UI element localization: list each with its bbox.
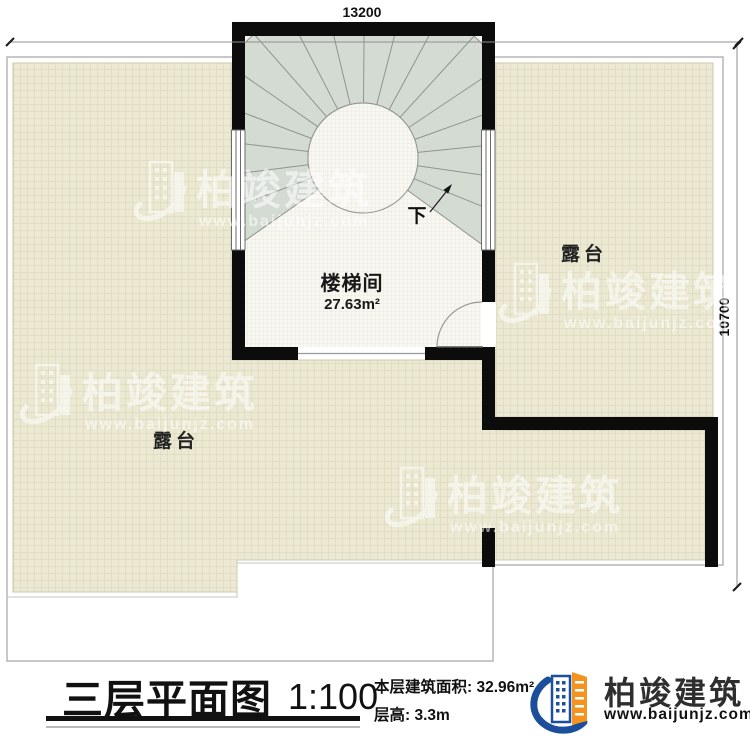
- floorplan-page: 13200 10700 楼梯间 27.63m² 露台 露台 下 柏竣建筑 www…: [0, 0, 750, 740]
- terrace-floor-right: [495, 63, 713, 417]
- room-name-label: 楼梯间: [321, 271, 384, 295]
- stair-down-label: 下: [407, 206, 426, 227]
- watermark-brand: 柏竣建筑: [447, 473, 623, 519]
- floor-height-label: 层高:: [374, 707, 410, 724]
- floor-area-value: 32.96m²: [476, 679, 534, 696]
- terrace-label-right: 露台: [561, 242, 607, 265]
- floor-height-line: 层高: 3.3m: [374, 703, 450, 725]
- plan-scale: 1:100: [288, 676, 378, 718]
- watermark-url: www.baijunjz.com: [84, 416, 255, 433]
- window-right: [482, 130, 496, 250]
- floor-area-line: 本层建筑面积: 32.96m²: [374, 675, 534, 697]
- title-underline-thin: [46, 726, 360, 728]
- title-block: 三层平面图 1:100 本层建筑面积: 32.96m² 层高: 3.3m: [0, 662, 750, 740]
- watermark-url: www.baijunjz.com: [563, 315, 734, 332]
- floorplan-drawing: 13200 10700 楼梯间 27.63m² 露台 露台 下 柏竣建筑 www…: [0, 0, 750, 662]
- dimension-top-value: 13200: [343, 4, 382, 20]
- watermark-brand: 柏竣建筑: [196, 167, 372, 213]
- title-underline-thick: [46, 716, 360, 721]
- watermark-url: www.baijunjz.com: [449, 519, 620, 536]
- brand-logo-icon: [528, 664, 602, 738]
- watermark-url: www.baijunjz.com: [198, 213, 369, 230]
- floor-area-label: 本层建筑面积:: [374, 679, 472, 696]
- brand-url: www.baijunjz.com: [604, 706, 750, 724]
- room-area-label: 27.63m²: [324, 296, 380, 313]
- floor-height-value: 3.3m: [414, 707, 449, 724]
- watermark-brand: 柏竣建筑: [561, 269, 737, 315]
- watermark-brand: 柏竣建筑: [82, 370, 258, 416]
